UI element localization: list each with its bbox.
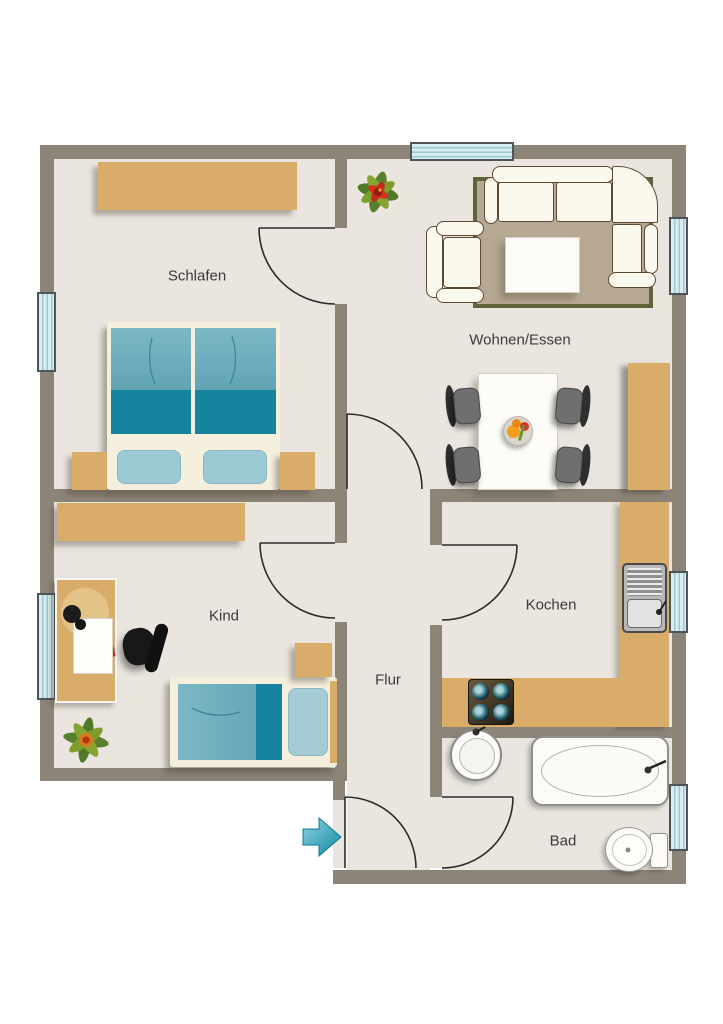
wall-top [40, 145, 686, 159]
door-gap-bad [430, 797, 442, 868]
double-bed [107, 322, 280, 490]
sideboard [628, 363, 670, 490]
sink-drainboard [627, 568, 662, 596]
wall-kind-east-upper [335, 502, 347, 543]
kitchen-sink [622, 563, 667, 633]
sink-basin [627, 599, 662, 628]
chair-seat [554, 446, 583, 484]
coffee-table [505, 237, 580, 293]
room-label-schlafen: Schlafen [168, 268, 226, 285]
room-label-bad: Bad [550, 833, 577, 850]
sofa-armrest-bottom [608, 272, 656, 288]
wall-schlafen-east-lower [335, 304, 347, 489]
toilet-bowl [605, 827, 653, 872]
nightstand-kind [295, 643, 332, 677]
single-bed-blanket [256, 684, 282, 760]
room-label-wohnen-essen: Wohnen/Essen [469, 332, 570, 349]
washbasin-inner [459, 738, 495, 774]
single-bed-pillow [288, 688, 328, 756]
pillow-left [117, 450, 181, 484]
burner [472, 683, 489, 700]
sofa-back-right [644, 224, 658, 274]
dining-chair-top-right [557, 384, 590, 428]
window-top-wohnen [410, 142, 514, 161]
chair-seat [554, 387, 583, 425]
washbasin [450, 729, 502, 781]
sofa-armrest-left [484, 177, 498, 224]
wardrobe-schlafen [98, 162, 297, 210]
single-bed-headboard [330, 681, 337, 763]
stove [468, 679, 514, 725]
duvet-right [195, 328, 276, 390]
door-gap-kochen [430, 545, 442, 625]
armchair-seat [443, 237, 481, 288]
door-gap-kind [335, 543, 347, 622]
wall-bad-west [430, 738, 442, 797]
wall-kochen-west-upper [430, 502, 442, 545]
wardrobe-kind [57, 503, 245, 541]
sofa-back-top [492, 166, 614, 183]
pillow-right [203, 450, 267, 484]
nightstand-right [280, 452, 315, 490]
bathtub-inner [541, 745, 659, 797]
wall-bottom [333, 870, 686, 884]
sofa-seat-2 [556, 182, 612, 222]
chair-seat [452, 446, 481, 484]
wall-entry-left [333, 781, 345, 800]
window-bad [669, 784, 688, 851]
desk [55, 578, 117, 703]
duvet-left [111, 328, 191, 390]
wall-schlafen-east-upper [335, 159, 347, 228]
sofa-seat-right [612, 224, 642, 274]
armchair-armrest-top [436, 221, 484, 236]
armchair-armrest-bottom [436, 288, 484, 303]
door-gap-entrance [333, 800, 345, 868]
burner [493, 704, 510, 721]
desk-lamp-arm [75, 619, 86, 630]
dining-chair-bottom-right [557, 443, 590, 487]
wall-mid-west [40, 489, 347, 502]
window-schlafen [37, 292, 56, 372]
room-label-flur: Flur [375, 672, 401, 689]
window-kind [37, 593, 56, 700]
dining-chair-top-left [446, 384, 479, 428]
burner [493, 683, 510, 700]
dining-chair-bottom-left [446, 443, 479, 487]
window-wohnen-right [669, 217, 688, 295]
nightstand-left [72, 452, 107, 490]
door-gap-schlafen [335, 228, 347, 304]
toilet-bowl-inner [612, 834, 647, 866]
wall-mid-east [430, 489, 672, 502]
blanket-right [195, 390, 276, 434]
room-label-kind: Kind [209, 608, 239, 625]
wall-kind-bottom [40, 768, 347, 781]
floor-plan: Schlafen Wohnen/Essen Kind Kochen Flur B… [0, 0, 723, 1024]
wall-kochen-west-lower [430, 625, 442, 727]
blanket-left [111, 390, 191, 434]
room-label-kochen: Kochen [526, 597, 577, 614]
armchair-back [426, 226, 443, 298]
fruit-bowl [503, 416, 533, 446]
window-kochen [669, 571, 688, 633]
sofa-seat-1 [498, 182, 554, 222]
burner [472, 704, 489, 721]
bathtub [531, 736, 669, 806]
chair-seat [452, 387, 481, 425]
single-bed [170, 677, 337, 767]
